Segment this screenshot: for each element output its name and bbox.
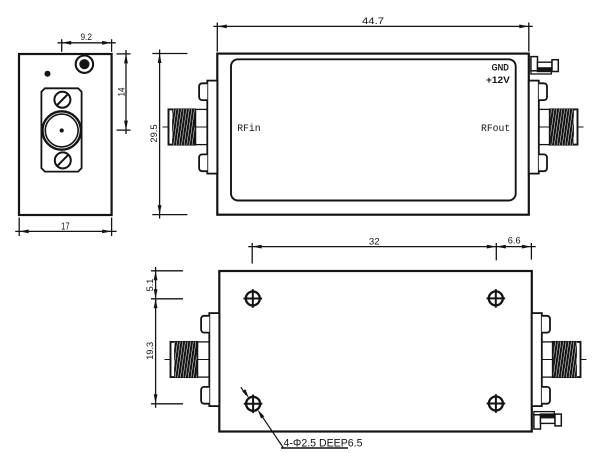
svg-text:29.5: 29.5 <box>148 124 159 142</box>
svg-text:+12V: +12V <box>486 75 511 85</box>
svg-text:14: 14 <box>116 88 126 97</box>
svg-text:9.2: 9.2 <box>80 31 92 42</box>
svg-text:RFout: RFout <box>481 123 510 135</box>
svg-text:17: 17 <box>61 222 70 233</box>
svg-text:44.7: 44.7 <box>362 15 384 26</box>
svg-text:5.1: 5.1 <box>145 279 155 292</box>
svg-text:GND: GND <box>492 63 509 73</box>
svg-text:32: 32 <box>369 237 380 248</box>
svg-text:4-Φ2.5 DEEP6.5: 4-Φ2.5 DEEP6.5 <box>284 437 363 449</box>
svg-text:19.3: 19.3 <box>145 342 155 360</box>
svg-text:RFin: RFin <box>237 123 261 135</box>
svg-text:6.6: 6.6 <box>508 236 521 246</box>
